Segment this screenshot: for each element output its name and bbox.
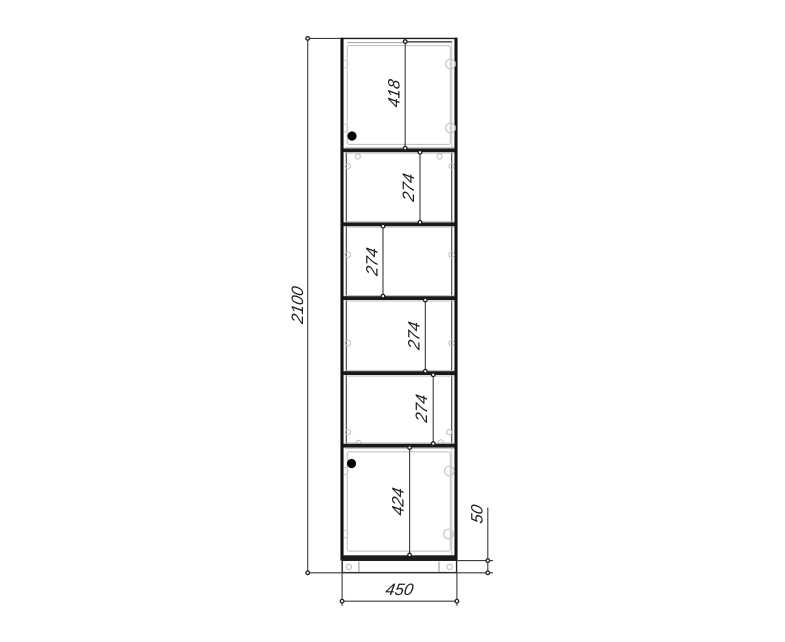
svg-text:450: 450: [384, 580, 416, 599]
svg-text:50: 50: [468, 502, 487, 524]
svg-text:274: 274: [362, 246, 381, 278]
svg-text:274: 274: [412, 393, 431, 425]
svg-text:424: 424: [389, 486, 408, 517]
svg-text:274: 274: [399, 172, 418, 204]
svg-text:274: 274: [405, 320, 424, 352]
svg-text:2100: 2100: [288, 284, 307, 326]
svg-text:418: 418: [385, 77, 404, 109]
